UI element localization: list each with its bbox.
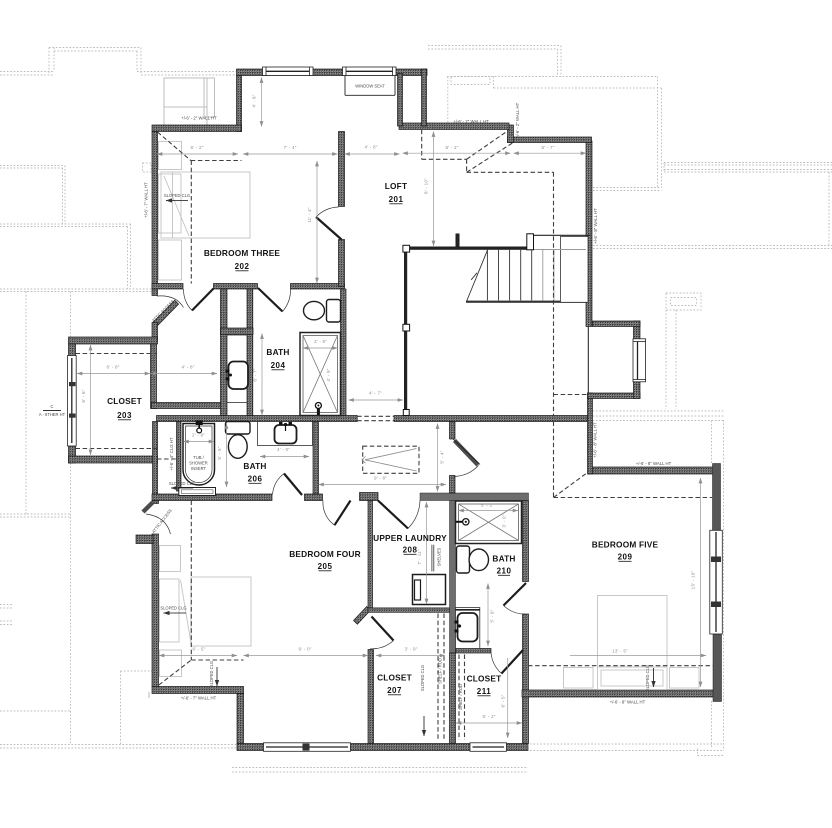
svg-text:UPPER LAUNDRY: UPPER LAUNDRY [373, 533, 447, 543]
svg-text:4' - 8": 4' - 8" [181, 365, 194, 370]
svg-text:SHELVES: SHELVES [437, 547, 442, 566]
svg-text:205: 205 [318, 562, 333, 571]
svg-text:TUB /: TUB / [193, 455, 204, 460]
svg-text:4' - 0": 4' - 0" [277, 447, 290, 452]
svg-text:CLOSET: CLOSET [107, 396, 142, 406]
svg-text:210: 210 [497, 567, 512, 576]
svg-text:5' - 4": 5' - 4" [440, 450, 445, 463]
svg-text:5' - 2": 5' - 2" [481, 503, 494, 508]
svg-text:CLOSET: CLOSET [377, 673, 412, 683]
svg-text:9' - 0": 9' - 0" [298, 647, 311, 652]
svg-text:6' - 5": 6' - 5" [501, 694, 506, 707]
svg-text:BATH: BATH [492, 554, 515, 564]
svg-text:13' - 5": 13' - 5" [612, 649, 628, 654]
svg-text:207: 207 [387, 686, 402, 695]
svg-text:208: 208 [403, 546, 418, 555]
svg-text:202: 202 [235, 262, 250, 271]
svg-text:SHELF / ROD: SHELF / ROD [458, 684, 463, 710]
svg-text:7' - 11": 7' - 11" [417, 549, 422, 565]
svg-text:BATH: BATH [243, 461, 266, 471]
svg-text:5' - 8": 5' - 8" [490, 609, 495, 622]
svg-text:SLOPED CLG: SLOPED CLG [209, 661, 214, 687]
svg-text:3' - 6": 3' - 6" [314, 339, 327, 344]
svg-text:CLOSET: CLOSET [467, 674, 502, 684]
svg-text:+/-6' - 2" WALL HT: +/-6' - 2" WALL HT [515, 102, 520, 138]
svg-text:6' - 6": 6' - 6" [81, 389, 86, 402]
svg-text:+/-6' - 8" WALL HT: +/-6' - 8" WALL HT [636, 461, 672, 466]
svg-text:LOFT: LOFT [385, 181, 407, 191]
svg-text:4' - 9": 4' - 9" [326, 368, 331, 381]
svg-text:7' - 4": 7' - 4" [283, 145, 296, 150]
svg-text:SHELF / ROD: SHELF / ROD [438, 658, 443, 684]
svg-text:201: 201 [389, 195, 404, 204]
svg-text:211: 211 [477, 687, 491, 696]
svg-text:11' - 4": 11' - 4" [307, 207, 312, 223]
svg-text:8' - 2": 8' - 2" [445, 145, 458, 150]
svg-text:+/-6' - 8" WALL HT: +/-6' - 8" WALL HT [593, 208, 598, 244]
svg-text:3' - 9": 3' - 9" [404, 647, 417, 652]
svg-text:6' - 8": 6' - 8" [106, 365, 119, 370]
svg-text:15' - 10": 15' - 10" [691, 571, 696, 590]
svg-text:206: 206 [248, 475, 263, 484]
svg-text:6' - 2": 6' - 2" [190, 145, 203, 150]
svg-text:BATH: BATH [266, 347, 289, 357]
svg-text:4' - 8": 4' - 8" [364, 145, 377, 150]
svg-text:+/-6' - 4" CLG HT: +/-6' - 4" CLG HT [169, 437, 174, 470]
svg-text:SLOPED CLG: SLOPED CLG [420, 665, 425, 691]
svg-text:+/-6' - 8" WALL HT: +/-6' - 8" WALL HT [610, 700, 646, 705]
svg-text:203: 203 [117, 411, 132, 420]
svg-text:+/-6' - 2" WALL HT: +/-6' - 2" WALL HT [453, 119, 489, 124]
svg-text:9' - 8": 9' - 8" [374, 476, 387, 481]
svg-text:4' - 7": 4' - 7" [369, 391, 382, 396]
svg-text:BEDROOM FIVE: BEDROOM FIVE [592, 540, 659, 550]
svg-text:WINDOW SEAT: WINDOW SEAT [355, 84, 385, 89]
svg-text:BEDROOM FOUR: BEDROOM FOUR [289, 549, 361, 559]
svg-text:BEDROOM THREE: BEDROOM THREE [204, 248, 281, 258]
svg-text:+/-6' - 8" WALL HT: +/-6' - 8" WALL HT [593, 422, 598, 458]
svg-text:SLOPED CLG: SLOPED CLG [164, 193, 190, 198]
svg-text:209: 209 [618, 553, 633, 562]
svg-text:8' - 10": 8' - 10" [424, 178, 429, 194]
svg-text:SLOPED CLG: SLOPED CLG [645, 665, 650, 691]
svg-text:5' - 7": 5' - 7" [541, 145, 554, 150]
svg-text:+/-6' - 7" WALL HT: +/-6' - 7" WALL HT [144, 182, 149, 218]
svg-text:SLOPED CLG: SLOPED CLG [160, 606, 186, 611]
svg-text:6' - 5": 6' - 5" [192, 647, 205, 652]
svg-text:4' - 8": 4' - 8" [252, 94, 257, 107]
svg-text:5' - 2": 5' - 2" [482, 714, 495, 719]
svg-text:204: 204 [271, 361, 286, 370]
svg-text:5' - 5": 5' - 5" [217, 446, 222, 459]
svg-text:2' - 8": 2' - 8" [192, 433, 205, 438]
svg-text:+/-6' - 2" WALL HT: +/-6' - 2" WALL HT [181, 116, 217, 121]
svg-text:A - 6THER HT: A - 6THER HT [39, 412, 66, 417]
svg-text:C: C [51, 404, 54, 409]
svg-text:+/-6' - 7" WALL HT: +/-6' - 7" WALL HT [181, 696, 217, 701]
svg-text:SHOWER: SHOWER [189, 461, 207, 466]
svg-text:INSERT: INSERT [191, 466, 206, 471]
svg-text:3' - 0": 3' - 0" [502, 514, 507, 527]
svg-text:SLOPED CLG: SLOPED CLG [169, 481, 195, 486]
svg-text:6' - 7": 6' - 7" [253, 368, 258, 381]
